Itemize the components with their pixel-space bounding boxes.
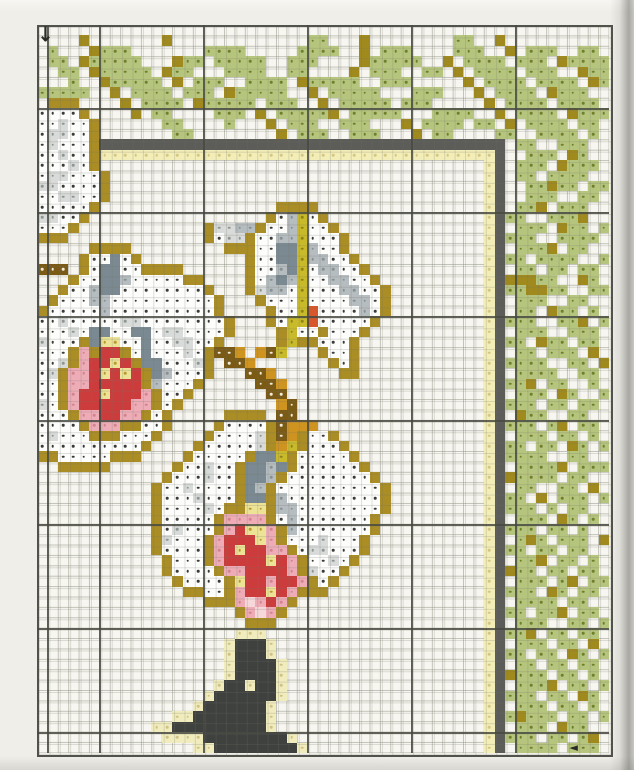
stitch-cell <box>120 306 130 316</box>
stitch-cell <box>391 108 401 118</box>
stitch-cell <box>255 670 265 680</box>
stitch-cell <box>37 139 47 149</box>
stitch-cell <box>287 420 297 430</box>
stitch-cell <box>79 160 89 170</box>
stitch-cell <box>599 576 609 586</box>
stitch-cell <box>58 87 68 97</box>
stitch-cell <box>495 670 505 680</box>
stitch-cell <box>235 711 245 721</box>
stitch-cell <box>339 337 349 347</box>
stitch-cell <box>162 275 172 285</box>
stitch-cell <box>578 462 588 472</box>
stitch-cell <box>536 285 546 295</box>
stitch-cell <box>318 139 328 149</box>
stitch-cell <box>276 680 286 690</box>
stitch-cell <box>183 275 193 285</box>
stitch-cell <box>255 233 265 243</box>
stitch-cell <box>453 46 463 56</box>
stitch-cell <box>276 462 286 472</box>
stitch-cell <box>380 56 390 66</box>
stitch-cell <box>557 337 567 347</box>
stitch-cell <box>162 358 172 368</box>
stitch-cell <box>526 628 536 638</box>
stitch-cell <box>588 732 598 742</box>
stitch-cell <box>401 150 411 160</box>
stitch-cell <box>287 451 297 461</box>
stitch-cell <box>578 98 588 108</box>
stitch-cell <box>359 56 369 66</box>
stitch-cell <box>68 347 78 357</box>
stitch-cell <box>453 139 463 149</box>
stitch-cell <box>339 98 349 108</box>
stitch-cell <box>401 56 411 66</box>
stitch-cell <box>588 56 598 66</box>
stitch-cell <box>47 181 57 191</box>
stitch-cell <box>276 285 286 295</box>
stitch-cell <box>505 212 515 222</box>
stitch-cell <box>89 254 99 264</box>
stitch-cell <box>536 160 546 170</box>
stitch-cell <box>588 98 598 108</box>
stitch-cell <box>37 129 47 139</box>
stitch-cell <box>588 46 598 56</box>
stitch-cell <box>245 722 255 732</box>
stitch-cell <box>495 607 505 617</box>
stitch-cell <box>536 441 546 451</box>
stitch-cell <box>557 535 567 545</box>
stitch-cell <box>328 264 338 274</box>
stitch-cell <box>89 451 99 461</box>
stitch-cell <box>37 150 47 160</box>
stitch-cell <box>443 139 453 149</box>
stitch-cell <box>214 337 224 347</box>
stitch-cell <box>276 347 286 357</box>
stitch-cell <box>515 691 525 701</box>
stitch-cell <box>484 212 494 222</box>
stitch-cell <box>89 441 99 451</box>
stitch-cell <box>578 87 588 97</box>
stitch-cell <box>79 295 89 305</box>
stitch-cell <box>297 327 307 337</box>
stitch-cell <box>235 441 245 451</box>
stitch-cell <box>536 389 546 399</box>
stitch-cell <box>515 514 525 524</box>
stitch-cell <box>120 410 130 420</box>
stitch-cell <box>162 472 172 482</box>
stitch-cell <box>266 87 276 97</box>
stitch-cell <box>193 566 203 576</box>
stitch-cell <box>297 233 307 243</box>
stitch-cell <box>255 410 265 420</box>
stitch-cell <box>380 295 390 305</box>
stitch-cell <box>224 639 234 649</box>
stitch-cell <box>37 233 47 243</box>
stitch-cell <box>567 150 577 160</box>
stitch-cell <box>484 576 494 586</box>
stitch-cell <box>255 275 265 285</box>
stitch-cell <box>287 597 297 607</box>
stitch-cell <box>47 150 57 160</box>
stitch-cell <box>266 514 276 524</box>
stitch-cell <box>578 732 588 742</box>
stitch-cell <box>588 327 598 337</box>
stitch-cell <box>224 670 234 680</box>
stitch-cell <box>183 67 193 77</box>
stitch-cell <box>203 98 213 108</box>
stitch-cell <box>110 451 120 461</box>
stitch-cell <box>276 129 286 139</box>
stitch-cell <box>203 483 213 493</box>
stitch-cell <box>245 576 255 586</box>
stitch-cell <box>515 555 525 565</box>
stitch-cell <box>255 431 265 441</box>
stitch-cell <box>276 535 286 545</box>
stitch-cell <box>37 368 47 378</box>
stitch-cell <box>307 535 317 545</box>
stitch-cell <box>68 451 78 461</box>
stitch-cell <box>224 576 234 586</box>
stitch-cell <box>99 191 109 201</box>
stitch-cell <box>536 108 546 118</box>
stitch-cell <box>526 597 536 607</box>
stitch-cell <box>328 431 338 441</box>
stitch-cell <box>599 108 609 118</box>
stitch-cell <box>328 535 338 545</box>
stitch-cell <box>567 472 577 482</box>
stitch-cell <box>567 639 577 649</box>
stitch-cell <box>287 150 297 160</box>
stitch-cell <box>214 691 224 701</box>
stitch-cell <box>266 524 276 534</box>
stitch-cell <box>432 150 442 160</box>
stitch-cell <box>567 223 577 233</box>
stitch-cell <box>89 67 99 77</box>
stitch-cell <box>193 285 203 295</box>
stitch-cell <box>307 327 317 337</box>
stitch-cell <box>110 254 120 264</box>
stitch-cell <box>297 56 307 66</box>
stitch-cell <box>276 295 286 305</box>
stitch-cell <box>526 98 536 108</box>
stitch-cell <box>203 233 213 243</box>
stitch-cell <box>276 431 286 441</box>
stitch-cell <box>307 243 317 253</box>
stitch-cell <box>484 171 494 181</box>
stitch-cell <box>110 410 120 420</box>
stitch-cell <box>203 358 213 368</box>
stitch-cell <box>547 171 557 181</box>
stitch-cell <box>141 368 151 378</box>
stitch-cell <box>193 295 203 305</box>
stitch-cell <box>58 316 68 326</box>
stitch-cell <box>307 108 317 118</box>
stitch-cell <box>245 607 255 617</box>
stitch-cell <box>318 566 328 576</box>
stitch-cell <box>328 139 338 149</box>
stitch-cell <box>183 285 193 295</box>
stitch-cell <box>68 108 78 118</box>
stitch-cell <box>547 337 557 347</box>
stitch-cell <box>599 223 609 233</box>
stitch-cell <box>37 389 47 399</box>
stitch-cell <box>99 316 109 326</box>
stitch-cell <box>526 462 536 472</box>
stitch-cell <box>172 150 182 160</box>
stitch-cell <box>79 306 89 316</box>
stitch-cell <box>578 358 588 368</box>
stitch-cell <box>162 379 172 389</box>
stitch-cell <box>255 77 265 87</box>
stitch-cell <box>151 503 161 513</box>
stitch-cell <box>495 743 505 753</box>
stitch-cell <box>339 462 349 472</box>
stitch-cell <box>328 223 338 233</box>
stitch-cell <box>193 139 203 149</box>
stitch-cell <box>287 743 297 753</box>
stitch-cell <box>255 566 265 576</box>
stitch-cell <box>141 379 151 389</box>
stitch-cell <box>276 441 286 451</box>
stitch-cell <box>79 181 89 191</box>
stitch-cell <box>245 711 255 721</box>
stitch-cell <box>297 535 307 545</box>
stitch-cell <box>131 306 141 316</box>
stitch-cell <box>89 399 99 409</box>
stitch-cell <box>536 680 546 690</box>
stitch-cell <box>557 129 567 139</box>
stitch-cell <box>495 431 505 441</box>
stitch-cell <box>567 98 577 108</box>
stitch-cell <box>547 285 557 295</box>
stitch-cell <box>328 316 338 326</box>
stitch-cell <box>495 483 505 493</box>
stitch-cell <box>505 46 515 56</box>
stitch-cell <box>495 514 505 524</box>
stitch-cell <box>359 514 369 524</box>
stitch-cell <box>339 358 349 368</box>
stitch-cell <box>297 316 307 326</box>
stitch-cell <box>266 566 276 576</box>
stitch-cell <box>588 431 598 441</box>
stitch-cell <box>484 337 494 347</box>
stitch-cell <box>578 493 588 503</box>
stitch-cell <box>515 618 525 628</box>
stitch-cell <box>318 316 328 326</box>
stitch-cell <box>287 327 297 337</box>
stitch-cell <box>567 243 577 253</box>
stitch-cell <box>203 597 213 607</box>
stitch-cell <box>536 472 546 482</box>
stitch-cell <box>172 462 182 472</box>
stitch-cell <box>495 503 505 513</box>
stitch-cell <box>578 139 588 149</box>
stitch-cell <box>214 701 224 711</box>
stitch-cell <box>536 711 546 721</box>
stitch-cell <box>224 597 234 607</box>
stitch-cell <box>172 503 182 513</box>
stitch-cell <box>214 743 224 753</box>
stitch-cell <box>68 462 78 472</box>
stitch-cell <box>47 87 57 97</box>
stitch-cell <box>203 77 213 87</box>
stitch-cell <box>172 56 182 66</box>
stitch-cell <box>255 514 265 524</box>
stitch-cell <box>79 399 89 409</box>
stitch-cell <box>183 389 193 399</box>
stitch-cell <box>495 108 505 118</box>
stitch-cell <box>339 472 349 482</box>
stitch-cell <box>131 368 141 378</box>
stitch-cell <box>37 306 47 316</box>
stitch-cell <box>183 493 193 503</box>
stitch-cell <box>339 327 349 337</box>
stitch-cell <box>203 462 213 472</box>
stitch-cell <box>557 555 567 565</box>
stitch-cell <box>224 722 234 732</box>
stitch-cell <box>328 285 338 295</box>
stitch-cell <box>484 264 494 274</box>
stitch-cell <box>172 576 182 586</box>
stitch-cell <box>515 597 525 607</box>
stitch-cell <box>557 639 567 649</box>
stitch-cell <box>318 451 328 461</box>
stitch-cell <box>547 87 557 97</box>
stitch-cell <box>99 368 109 378</box>
stitch-cell <box>224 410 234 420</box>
stitch-cell <box>89 295 99 305</box>
stitch-cell <box>99 295 109 305</box>
stitch-cell <box>245 493 255 503</box>
stitch-cell <box>484 483 494 493</box>
stitch-cell <box>495 254 505 264</box>
stitch-cell <box>536 295 546 305</box>
stitch-cell <box>89 119 99 129</box>
stitch-cell <box>214 56 224 66</box>
stitch-cell <box>526 316 536 326</box>
stitch-cell <box>37 202 47 212</box>
stitch-cell <box>214 597 224 607</box>
stitch-cell <box>588 514 598 524</box>
stitch-cell <box>79 275 89 285</box>
stitch-cell <box>120 379 130 389</box>
stitch-cell <box>266 587 276 597</box>
stitch-cell <box>120 56 130 66</box>
stitch-cell <box>193 576 203 586</box>
stitch-cell <box>567 597 577 607</box>
stitch-cell <box>68 139 78 149</box>
stitch-cell <box>245 77 255 87</box>
stitch-cell <box>495 35 505 45</box>
stitch-cell <box>131 254 141 264</box>
stitch-cell <box>547 212 557 222</box>
stitch-cell <box>89 410 99 420</box>
stitch-cell <box>37 441 47 451</box>
stitch-cell <box>266 743 276 753</box>
stitch-cell <box>172 493 182 503</box>
stitch-cell <box>47 119 57 129</box>
stitch-cell <box>131 451 141 461</box>
stitch-cell <box>547 659 557 669</box>
stitch-cell <box>224 524 234 534</box>
stitch-cell <box>318 254 328 264</box>
stitch-cell <box>484 587 494 597</box>
stitch-cell <box>89 379 99 389</box>
stitch-cell <box>505 607 515 617</box>
stitch-cell <box>235 233 245 243</box>
stitch-cell <box>224 462 234 472</box>
stitch-cell <box>318 535 328 545</box>
stitch-cell <box>266 576 276 586</box>
stitch-cell <box>287 243 297 253</box>
stitch-cell <box>120 150 130 160</box>
stitch-cell <box>193 535 203 545</box>
stitch-cell <box>453 119 463 129</box>
stitch-cell <box>515 524 525 534</box>
stitch-cell <box>318 35 328 45</box>
stitch-cell <box>495 597 505 607</box>
stitch-cell <box>567 77 577 87</box>
stitch-cell <box>588 670 598 680</box>
stitch-cell <box>318 243 328 253</box>
stitch-cell <box>349 295 359 305</box>
stitch-cell <box>224 659 234 669</box>
stitch-cell <box>68 337 78 347</box>
stitch-cell <box>58 306 68 316</box>
stitch-cell <box>578 368 588 378</box>
stitch-cell <box>214 472 224 482</box>
stitch-cell <box>58 160 68 170</box>
stitch-cell <box>391 150 401 160</box>
stitch-cell <box>266 212 276 222</box>
stitch-cell <box>193 87 203 97</box>
stitch-cell <box>131 431 141 441</box>
stitch-cell <box>68 285 78 295</box>
stitch-cell <box>287 98 297 108</box>
stitch-cell <box>297 566 307 576</box>
stitch-cell <box>141 67 151 77</box>
stitch-cell <box>245 233 255 243</box>
stitch-cell <box>266 462 276 472</box>
stitch-cell <box>68 150 78 160</box>
stitch-cell <box>515 316 525 326</box>
stitch-cell <box>214 327 224 337</box>
stitch-cell <box>515 607 525 617</box>
stitch-cell <box>495 462 505 472</box>
stitch-cell <box>89 129 99 139</box>
stitch-cell <box>47 431 57 441</box>
stitch-cell <box>339 275 349 285</box>
stitch-cell <box>255 545 265 555</box>
stitch-cell <box>567 306 577 316</box>
stitch-cell <box>203 722 213 732</box>
stitch-cell <box>287 483 297 493</box>
stitch-cell <box>235 701 245 711</box>
stitch-cell <box>526 503 536 513</box>
stitch-cell <box>58 441 68 451</box>
stitch-cell <box>495 722 505 732</box>
stitch-cell <box>193 514 203 524</box>
stitch-cell <box>359 275 369 285</box>
stitch-cell <box>193 441 203 451</box>
stitch-cell <box>151 722 161 732</box>
stitch-cell <box>79 129 89 139</box>
stitch-cell <box>47 202 57 212</box>
stitch-cell <box>203 316 213 326</box>
stitch-cell <box>484 743 494 753</box>
stitch-cell <box>349 119 359 129</box>
stitch-cell <box>235 431 245 441</box>
stitch-cell <box>526 46 536 56</box>
